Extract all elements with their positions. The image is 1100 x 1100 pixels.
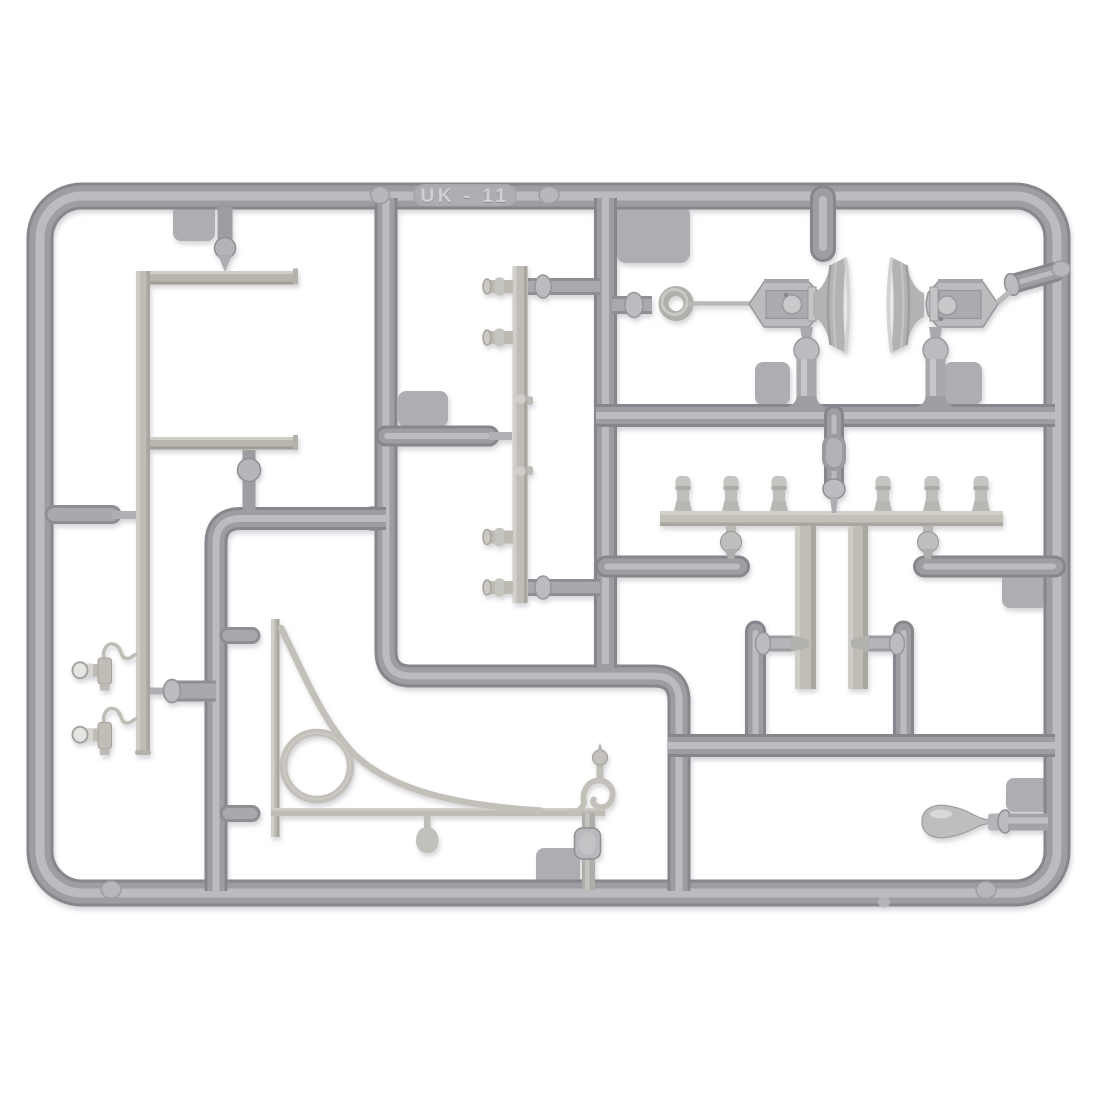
svg-text:UK - 11: UK - 11 — [421, 186, 510, 207]
